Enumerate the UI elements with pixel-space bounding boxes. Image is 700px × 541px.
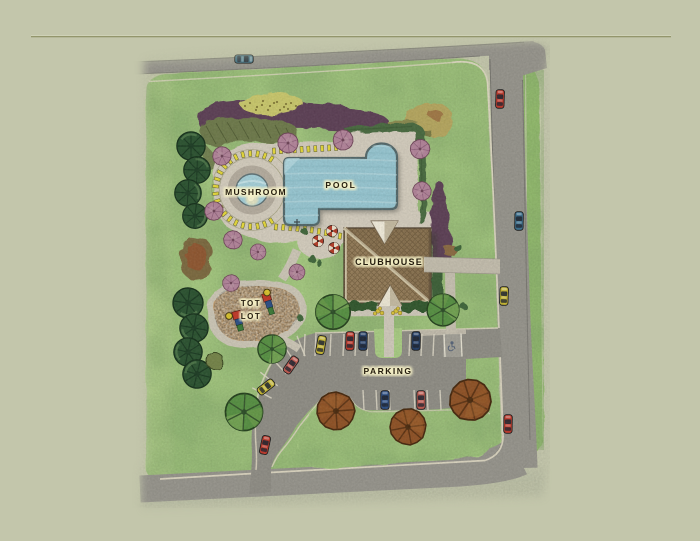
svg-text:PARKING: PARKING: [363, 366, 412, 376]
svg-text:LOT: LOT: [241, 312, 262, 321]
svg-text:MUSHROOM: MUSHROOM: [225, 187, 287, 197]
svg-text:CLUBHOUSE: CLUBHOUSE: [355, 257, 423, 267]
svg-text:POOL: POOL: [325, 180, 356, 190]
svg-text:TOT: TOT: [241, 299, 261, 308]
